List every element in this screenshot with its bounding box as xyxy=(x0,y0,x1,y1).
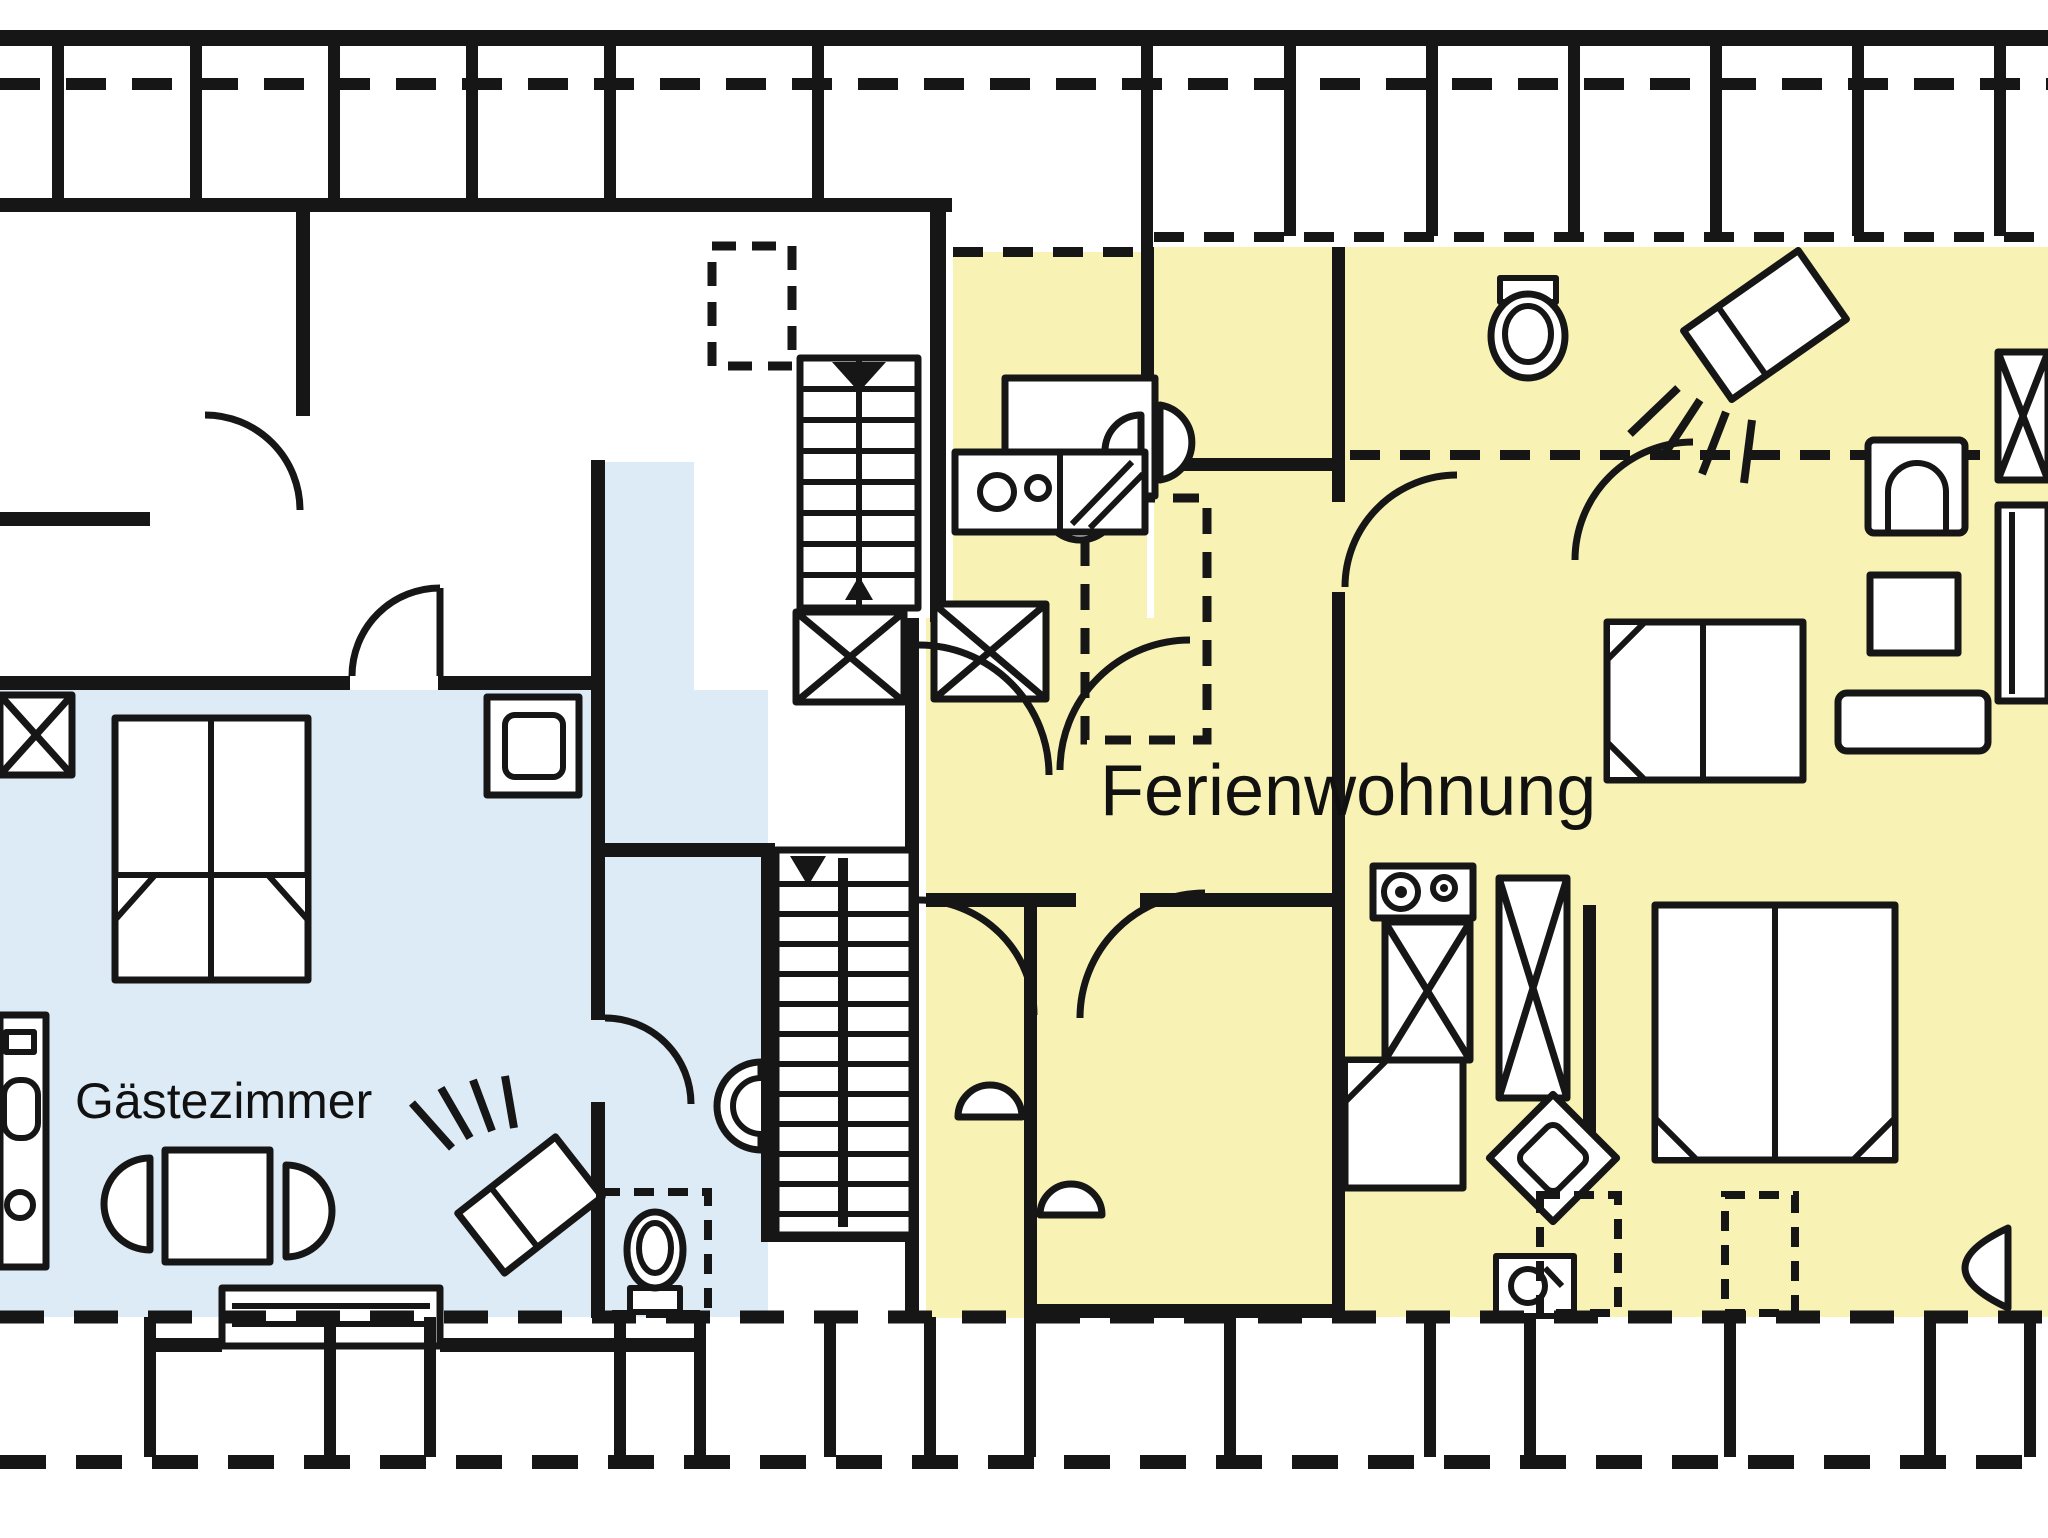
upper-staircase xyxy=(800,358,918,608)
shaft-x-box-gaestezimmer xyxy=(0,695,72,775)
washbasin-square-bottom xyxy=(1496,1256,1574,1316)
washbasin-inner xyxy=(733,1078,761,1134)
floor-plan: Ferienwohnung Gästezimmer xyxy=(0,0,2048,1538)
chimney-dashed-box xyxy=(712,246,792,366)
armchair-living xyxy=(1868,440,1965,533)
gaestezimmer-label: Gästezimmer xyxy=(75,1073,372,1129)
kitchenette-counter xyxy=(955,452,1145,532)
fridge-counter xyxy=(1345,1060,1463,1188)
shower-tray-gaestezimmer xyxy=(487,697,579,795)
couch-right-edge xyxy=(1998,505,2048,701)
gaestezimmer-double-bed xyxy=(115,718,308,980)
floor-plan-svg: Ferienwohnung Gästezimmer xyxy=(0,0,2048,1538)
gaestezimmer-table-and-chairs xyxy=(104,1150,332,1262)
bench-living xyxy=(1838,693,1988,751)
toilet-top-bath xyxy=(1491,278,1565,378)
stove-with-burners xyxy=(1373,866,1473,918)
ferienwohnung-label: Ferienwohnung xyxy=(1100,751,1596,831)
lower-staircase xyxy=(776,850,912,1235)
side-table-living xyxy=(1870,575,1958,653)
double-bed-top-right xyxy=(1607,622,1803,780)
shaft-x-box-left xyxy=(796,612,904,702)
double-bed-bottom-right xyxy=(1655,905,1895,1160)
tall-cupboard-x-2 xyxy=(1499,878,1567,1098)
wardrobe-x-box-right-edge xyxy=(1998,352,2048,480)
wash-cabinet-left-wall xyxy=(0,1015,46,1267)
tall-cupboard-x-1 xyxy=(1385,922,1470,1060)
